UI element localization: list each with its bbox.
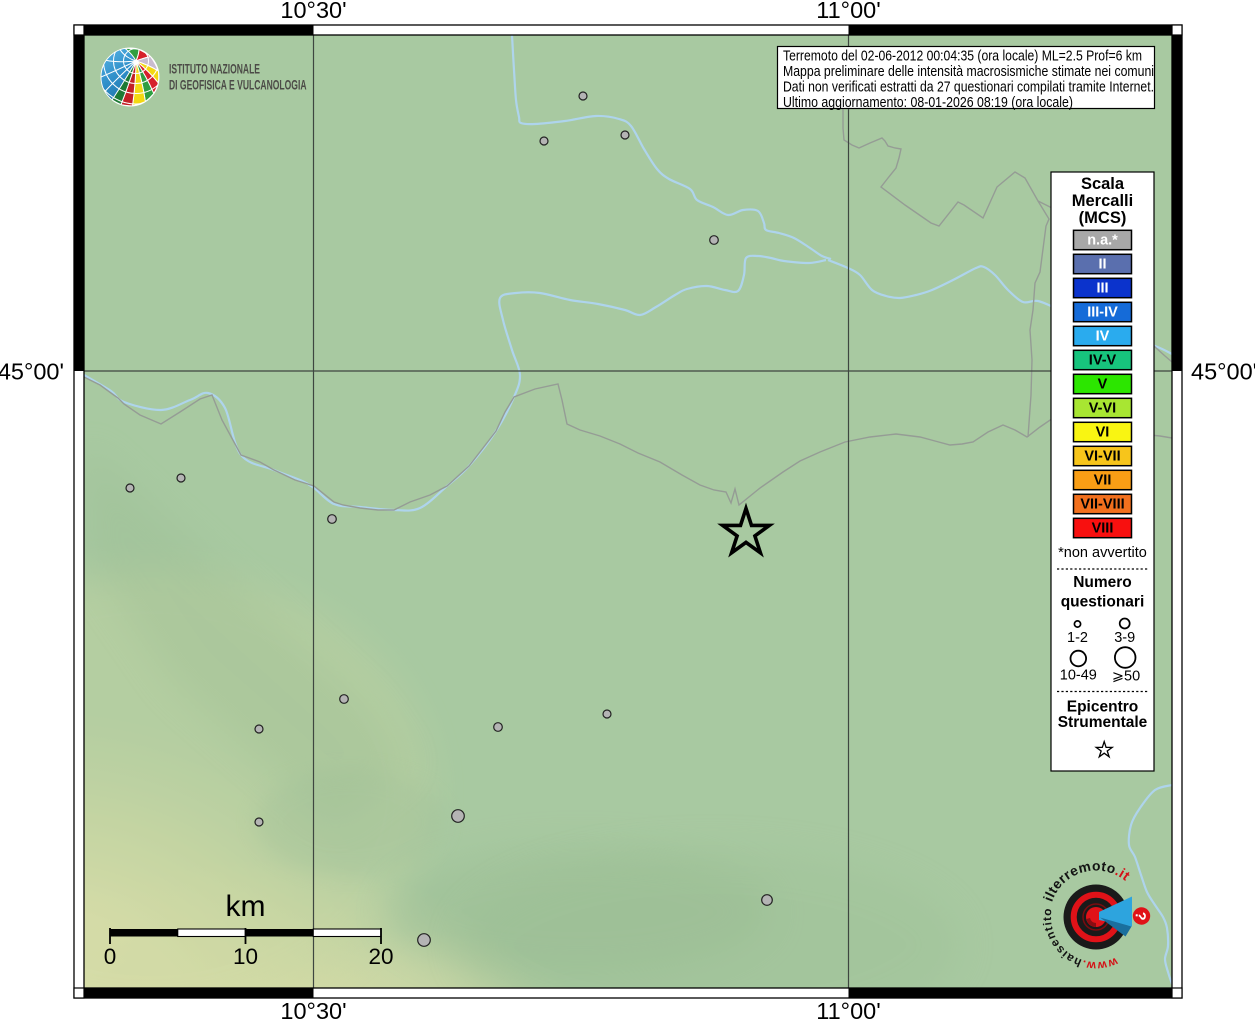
svg-text:10°30': 10°30' <box>280 0 346 23</box>
svg-text:V: V <box>1098 377 1108 393</box>
svg-text:11°00': 11°00' <box>816 0 880 23</box>
svg-text:III: III <box>1096 281 1108 297</box>
svg-text:Mercalli: Mercalli <box>1072 192 1133 210</box>
svg-text:IV: IV <box>1096 329 1110 345</box>
svg-text:Strumentale: Strumentale <box>1058 714 1148 731</box>
svg-text:DI GEOFISICA E VULCANOLOGIA: DI GEOFISICA E VULCANOLOGIA <box>169 78 307 93</box>
svg-text:45°00': 45°00' <box>1191 359 1255 385</box>
svg-text:Ultimo aggiornamento: 08-01-20: Ultimo aggiornamento: 08-01-2026 08:19 (… <box>783 94 1073 111</box>
svg-text:Epicentro: Epicentro <box>1067 699 1138 716</box>
svg-text:10-49: 10-49 <box>1060 668 1097 684</box>
svg-text:10: 10 <box>233 944 258 969</box>
svg-text:Terremoto del 02-06-2012 00:04: Terremoto del 02-06-2012 00:04:35 (ora l… <box>783 48 1142 65</box>
svg-text:Numero: Numero <box>1073 574 1132 591</box>
svg-text:km: km <box>226 890 266 923</box>
svg-text:10°30': 10°30' <box>280 998 346 1024</box>
svg-text:VI: VI <box>1096 425 1110 441</box>
svg-text:45°00': 45°00' <box>0 359 64 385</box>
svg-text:II: II <box>1098 257 1106 273</box>
svg-text:VII: VII <box>1094 473 1112 489</box>
svg-text:20: 20 <box>368 944 393 969</box>
svg-text:?: ? <box>1131 911 1148 921</box>
svg-text:3-9: 3-9 <box>1114 630 1135 646</box>
svg-text:Dati non verificati estratti d: Dati non verificati estratti da 27 quest… <box>783 79 1154 96</box>
svg-text:⩾50: ⩾50 <box>1112 669 1140 685</box>
svg-text:11°00': 11°00' <box>816 998 880 1024</box>
svg-text:0: 0 <box>104 944 117 969</box>
svg-text:*non avvertito: *non avvertito <box>1058 545 1147 561</box>
svg-text:ISTITUTO NAZIONALE: ISTITUTO NAZIONALE <box>169 62 260 77</box>
svg-text:(MCS): (MCS) <box>1079 209 1127 227</box>
svg-text:III-IV: III-IV <box>1087 305 1118 321</box>
svg-text:V-VI: V-VI <box>1089 401 1116 417</box>
svg-text:VI-VII: VI-VII <box>1084 449 1120 465</box>
svg-text:questionari: questionari <box>1061 594 1145 611</box>
svg-text:VII-VIII: VII-VIII <box>1080 497 1124 513</box>
svg-text:IV-V: IV-V <box>1089 353 1117 369</box>
svg-text:VIII: VIII <box>1092 521 1114 537</box>
svg-text:n.a.*: n.a.* <box>1087 233 1118 249</box>
svg-text:Scala: Scala <box>1081 175 1125 193</box>
svg-text:Mappa preliminare delle intens: Mappa preliminare delle intensità macros… <box>783 63 1154 80</box>
svg-text:1-2: 1-2 <box>1067 630 1088 646</box>
